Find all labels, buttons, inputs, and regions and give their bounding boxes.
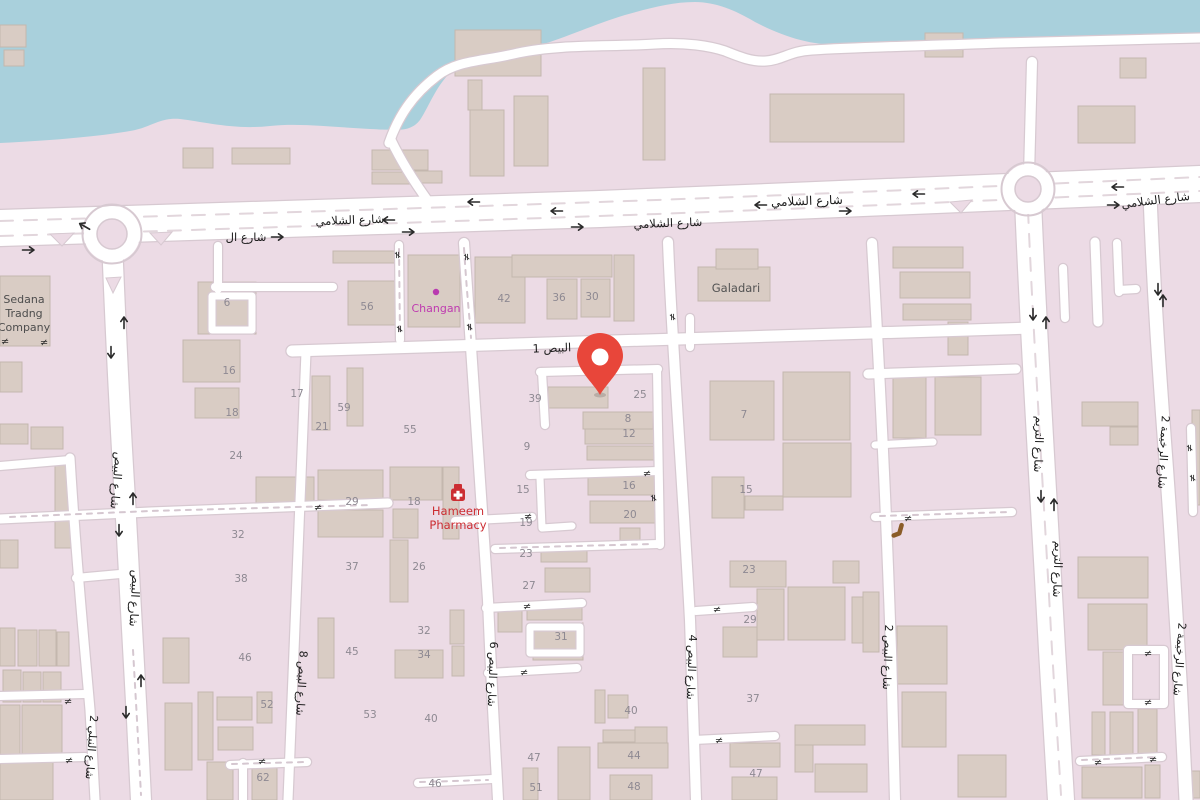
roundabout-island: [1015, 176, 1041, 202]
building: [452, 646, 464, 676]
gate-marker: ≠: [667, 313, 678, 321]
building: [31, 427, 63, 449]
building: [833, 561, 859, 583]
gate-marker: ≠: [1187, 474, 1198, 482]
house-number: 15: [516, 484, 529, 496]
building: [0, 628, 15, 666]
building: [333, 251, 395, 263]
house-number: 17: [290, 388, 303, 400]
gate-marker: ≠: [1149, 755, 1157, 766]
house-number: 38: [234, 573, 247, 585]
building: [1082, 402, 1138, 426]
building: [897, 626, 947, 684]
house-number: 15: [739, 484, 752, 496]
building: [783, 372, 850, 440]
road[interactable]: [1063, 268, 1065, 318]
house-number: 47: [749, 768, 762, 780]
road[interactable]: [76, 574, 120, 578]
house-number: 53: [363, 709, 376, 721]
gate-marker: ≠: [715, 736, 723, 747]
house-number: 32: [231, 529, 244, 541]
gate-marker: ≠: [461, 253, 472, 261]
building: [0, 424, 28, 444]
building: [0, 705, 20, 757]
house-number: 6: [224, 297, 231, 309]
gate-marker: ≠: [258, 757, 266, 768]
building: [232, 148, 290, 164]
building: [603, 730, 637, 742]
poi-label: Galadari: [712, 281, 760, 295]
gate-marker: ≠: [392, 251, 403, 259]
road[interactable]: [694, 736, 775, 740]
house-number: 9: [524, 441, 531, 453]
house-number: 19: [519, 517, 532, 529]
building: [0, 25, 26, 47]
building: [902, 692, 946, 747]
building: [468, 80, 482, 110]
house-number: 32: [417, 625, 430, 637]
building: [815, 764, 867, 792]
building: [57, 632, 69, 666]
gate-marker: ≠: [1094, 758, 1102, 769]
building: [18, 630, 37, 666]
house-number: 56: [360, 301, 374, 313]
building: [1088, 604, 1147, 650]
pin-hole: [592, 349, 609, 366]
building: [512, 255, 612, 277]
road[interactable]: [1095, 242, 1098, 322]
building: [595, 690, 605, 723]
poi-label: Sedana: [3, 293, 44, 306]
street-label: شارع البيص 4: [684, 634, 699, 699]
building: [183, 148, 213, 168]
road[interactable]: [488, 668, 577, 673]
house-number: 25: [633, 389, 646, 401]
building: [218, 727, 253, 750]
gate-marker: ≠: [64, 697, 72, 708]
building: [390, 540, 408, 602]
building: [1138, 709, 1157, 757]
house-number: 26: [412, 561, 426, 573]
building: [0, 362, 22, 392]
building: [863, 592, 879, 652]
building: [217, 697, 252, 720]
house-number: 40: [624, 705, 637, 717]
building: [958, 755, 1006, 797]
building: [1110, 712, 1133, 755]
house-number: 23: [519, 548, 532, 560]
gate-marker: ≠: [464, 323, 475, 331]
building: [788, 587, 845, 640]
gate-marker: ≠: [1144, 698, 1152, 709]
house-number: 30: [585, 291, 598, 303]
building: [39, 630, 56, 666]
house-number: 39: [528, 393, 541, 405]
building: [1120, 58, 1146, 78]
road[interactable]: [1117, 243, 1119, 292]
building: [558, 747, 590, 800]
building: [450, 610, 464, 644]
gate-marker: ≠: [520, 668, 528, 679]
building: [0, 762, 53, 800]
poi-label: Tradng: [4, 307, 42, 320]
house-number: 24: [229, 450, 243, 462]
building: [900, 272, 970, 298]
building: [935, 377, 981, 435]
road[interactable]: [486, 603, 582, 608]
building: [347, 368, 363, 426]
building: [198, 692, 213, 760]
gate-marker: ≠: [713, 605, 721, 616]
gate-marker: ≠: [523, 602, 531, 613]
house-number: 16: [222, 365, 236, 377]
gate-marker: ≠: [643, 469, 651, 480]
house-number: 29: [345, 496, 358, 508]
house-number: 46: [238, 652, 252, 664]
building: [1092, 712, 1105, 755]
house-number: 59: [337, 402, 350, 414]
house-number: 46: [428, 778, 442, 790]
building: [163, 638, 189, 683]
street-label: شارع البيص 6: [485, 641, 500, 706]
house-number: 48: [627, 781, 640, 793]
street-label: شارع البيص 2: [880, 624, 895, 689]
house-number: 16: [622, 480, 636, 492]
building: [770, 94, 904, 142]
poi-label: Hameem: [432, 504, 484, 518]
road[interactable]: [0, 694, 85, 696]
map-canvas[interactable]: ≠≠≠≠≠≠≠≠≠≠≠≠≠≠≠≠≠≠≠≠≠≠≠≠≠ 61618243238172…: [0, 0, 1200, 800]
gate-marker: ≠: [1, 337, 9, 348]
house-number: 62: [256, 772, 269, 784]
building: [470, 110, 504, 176]
building: [4, 50, 24, 66]
building: [795, 725, 865, 745]
house-number: 12: [622, 428, 635, 440]
building: [583, 412, 653, 429]
poi-label: Changan: [411, 302, 460, 315]
building: [643, 68, 665, 160]
building: [318, 510, 383, 537]
building: [757, 589, 784, 640]
house-number: 55: [403, 424, 416, 436]
house-number: 52: [260, 699, 273, 711]
pharmacy-icon-cross-h: [454, 494, 463, 497]
gate-marker: ≠: [648, 494, 659, 502]
building: [716, 249, 758, 269]
house-number: 44: [627, 750, 641, 762]
house-number: 34: [417, 649, 431, 661]
roundabout-island: [97, 219, 127, 249]
building: [893, 377, 926, 438]
building: [903, 304, 971, 320]
building: [585, 429, 655, 444]
gate-marker: ≠: [1184, 444, 1195, 452]
road[interactable]: [868, 369, 1016, 374]
house-number: 40: [424, 713, 437, 725]
gate-marker: ≠: [904, 514, 912, 525]
building: [1078, 557, 1148, 598]
house-number: 36: [552, 292, 566, 304]
road[interactable]: [657, 370, 660, 545]
poi-dot: [433, 289, 439, 295]
building: [795, 745, 813, 772]
house-number: 21: [315, 421, 328, 433]
building: [545, 568, 590, 592]
house-number: 18: [225, 407, 238, 419]
road[interactable]: [1029, 62, 1032, 175]
house-number: 51: [529, 782, 542, 794]
poi-label: Company: [0, 321, 51, 334]
building: [730, 743, 780, 767]
building: [0, 540, 18, 568]
building: [635, 727, 667, 743]
building: [22, 705, 62, 757]
building: [730, 561, 786, 587]
building: [620, 528, 640, 541]
building: [393, 509, 418, 538]
map-viewport[interactable]: { "map": { "colors": { "water": "#a9d0dc…: [0, 0, 1200, 800]
house-number: 45: [345, 646, 358, 658]
pharmacy-icon-cap: [454, 484, 462, 489]
building: [1082, 767, 1142, 798]
road[interactable]: [1119, 289, 1136, 290]
gate-marker: ≠: [314, 503, 322, 514]
gate-marker: ≠: [394, 325, 405, 333]
building: [745, 496, 783, 510]
road[interactable]: [875, 442, 933, 445]
house-number: 18: [407, 496, 420, 508]
building: [1078, 106, 1135, 143]
building: [783, 443, 851, 497]
road[interactable]: [530, 471, 658, 475]
house-number: 27: [522, 580, 535, 592]
house-number: 7: [741, 409, 748, 421]
house-number: 8: [625, 413, 632, 425]
building: [732, 777, 777, 800]
building: [514, 96, 548, 166]
building: [614, 255, 634, 321]
street-label: البيص 1: [532, 340, 571, 356]
road[interactable]: [696, 607, 753, 611]
building: [852, 597, 863, 643]
house-number: 37: [746, 693, 759, 705]
building: [1145, 765, 1160, 798]
house-number: 31: [554, 631, 567, 643]
house-number: 47: [527, 752, 540, 764]
building: [318, 618, 334, 678]
gate-marker: ≠: [40, 338, 48, 349]
house-number: 20: [623, 509, 636, 521]
house-number: 29: [743, 614, 756, 626]
gate-marker: ≠: [65, 756, 73, 767]
building: [587, 446, 657, 460]
street-label: شارع ال: [226, 230, 267, 245]
poi-galadari[interactable]: Galadari: [712, 281, 760, 295]
house-number: 37: [345, 561, 358, 573]
building: [723, 627, 757, 657]
road[interactable]: [542, 372, 545, 425]
building: [893, 247, 963, 268]
poi-label: Pharmacy: [429, 518, 486, 532]
house-number: 23: [742, 564, 755, 576]
road[interactable]: [1191, 428, 1193, 512]
building: [165, 703, 192, 770]
building: [1110, 427, 1138, 445]
gate-marker: ≠: [1144, 649, 1152, 660]
house-number: 42: [497, 293, 510, 305]
